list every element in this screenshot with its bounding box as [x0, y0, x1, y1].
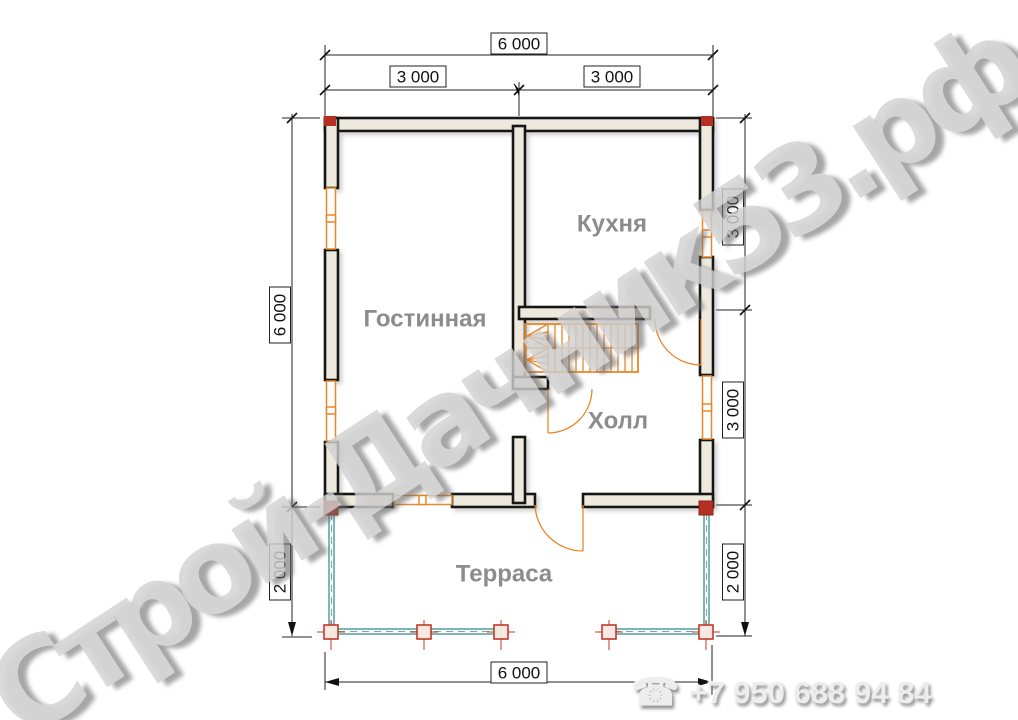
dim-top-left: 3 000	[390, 66, 446, 87]
svg-text:6 000: 6 000	[271, 294, 290, 337]
phone-number: +7 950 688 94 84	[689, 675, 931, 711]
dim-right-kitchen: 3 000	[723, 189, 744, 245]
wall-right-a	[700, 118, 713, 210]
terrace-post-4	[602, 625, 616, 639]
corner-mark-top-right	[701, 116, 713, 126]
wall-hall	[513, 437, 525, 503]
dim-right-hall: 3 000	[723, 382, 744, 438]
wall-kitchen-bottom	[519, 307, 650, 319]
room-label-hall: Холл	[588, 408, 648, 435]
door-kitchen	[655, 319, 701, 365]
room-label-living: Гостинная	[364, 306, 487, 333]
wall-partition	[513, 126, 525, 389]
corner-mark-top-left	[324, 116, 336, 126]
dim-left-house: 6 000	[270, 287, 291, 343]
svg-text:3 000: 3 000	[591, 68, 634, 87]
door-terrace	[535, 505, 583, 551]
room-label-terrace: Терраса	[456, 561, 553, 588]
dim-right-terrace: 2 000	[723, 544, 744, 600]
terrace-post-3	[494, 625, 508, 639]
wall-left-a	[325, 118, 338, 188]
svg-text:3 000: 3 000	[724, 389, 743, 432]
terrace-post-top-right	[699, 501, 713, 515]
floor-plan-canvas: Гостинная Кухня Холл Терраса 6 000 3 000…	[0, 0, 1018, 720]
dim-top-right: 3 000	[584, 66, 640, 87]
svg-text:6 000: 6 000	[498, 35, 541, 54]
svg-text:2 000: 2 000	[724, 551, 743, 594]
svg-text:3 000: 3 000	[724, 196, 743, 239]
wall-stair-stub	[513, 377, 548, 389]
door-hall	[548, 389, 592, 433]
dim-top-total: 6 000	[491, 33, 547, 54]
terrace-post-top-left	[324, 501, 338, 515]
terrace-post-2	[417, 625, 431, 639]
svg-text:3 000: 3 000	[397, 68, 440, 87]
svg-text:6 000: 6 000	[498, 664, 541, 683]
stairs	[525, 324, 638, 372]
svg-text:2 000: 2 000	[271, 551, 290, 594]
dim-left-terrace: 2 000	[270, 544, 291, 600]
phone-icon: ☎	[632, 674, 679, 712]
floor-plan-svg: Гостинная Кухня Холл Терраса 6 000 3 000…	[0, 0, 1018, 720]
dim-bottom-total: 6 000	[491, 662, 547, 683]
terrace-post-1	[324, 625, 338, 639]
wall-bottom-c	[583, 494, 713, 507]
wall-right-b	[700, 257, 713, 375]
wall-left-b	[325, 250, 338, 380]
phone-block: ☎ +7 950 688 94 84	[632, 674, 932, 712]
terrace-post-5	[699, 625, 713, 639]
room-label-kitchen: Кухня	[577, 211, 647, 238]
